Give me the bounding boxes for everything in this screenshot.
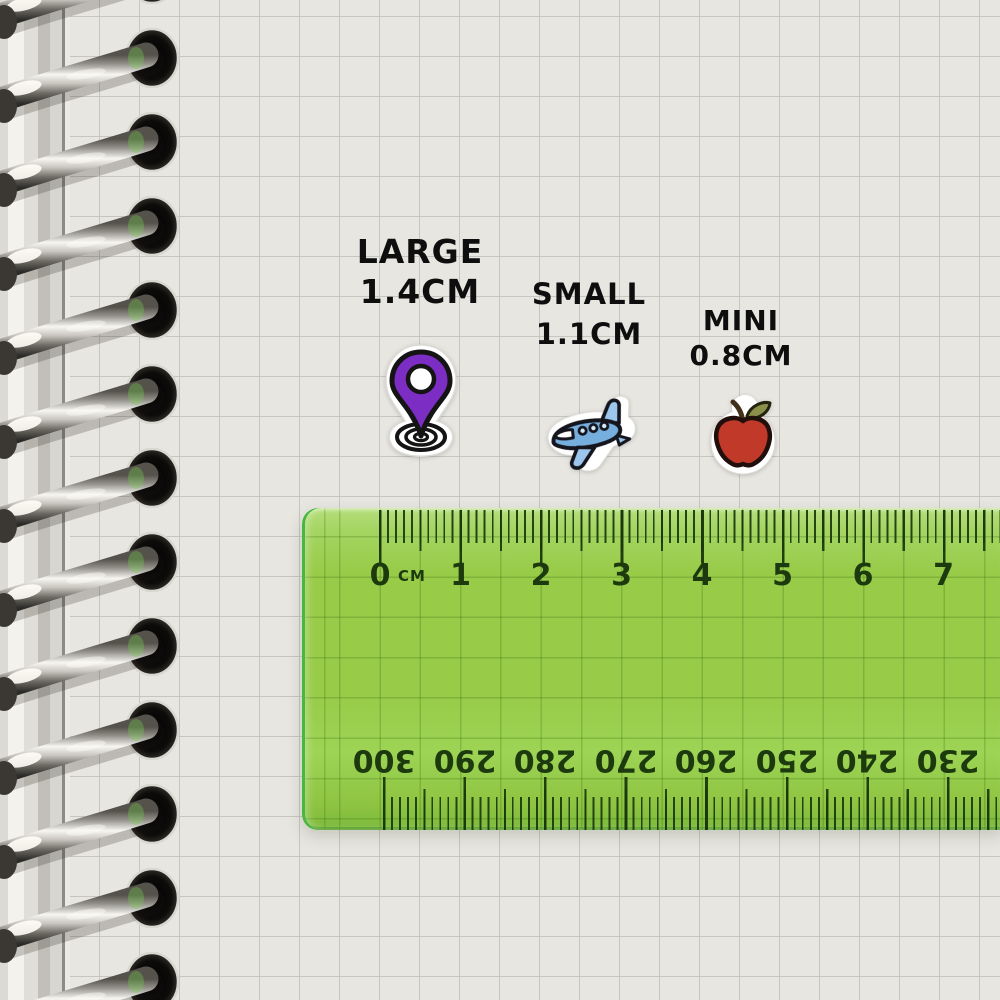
ruler-number-bottom: 290 xyxy=(433,743,496,778)
airplane-sticker-icon xyxy=(536,391,643,477)
spiral-ring xyxy=(0,0,178,26)
ruler-number-bottom: 240 xyxy=(836,743,899,778)
apple-sticker-icon xyxy=(707,392,779,476)
location-pin-sticker-icon xyxy=(380,342,462,464)
ruler-number-top: 3 xyxy=(611,558,632,593)
spiral-binding-icon xyxy=(0,0,210,1000)
ruler-number-top: 1 xyxy=(450,558,471,593)
ruler-number-bottom: 230 xyxy=(916,743,979,778)
label-mini: MINI 0.8CM xyxy=(689,303,792,373)
ruler-number-bottom: 250 xyxy=(755,743,818,778)
ruler-number-bottom: 300 xyxy=(353,743,416,778)
ruler-number-top: 6 xyxy=(853,558,874,593)
notebook-photo: LARGE 1.4CM SMALL 1.1CM MINI 0.8CM xyxy=(0,0,1000,1000)
label-large-title: LARGE xyxy=(357,232,484,272)
ruler-number-top: 0 xyxy=(370,558,391,593)
label-small-title: SMALL xyxy=(532,274,646,314)
label-small-size: 1.1CM xyxy=(532,314,646,354)
label-large: LARGE 1.4CM xyxy=(357,232,484,312)
label-mini-title: MINI xyxy=(689,303,792,338)
ruler-number-bottom: 280 xyxy=(514,743,577,778)
ruler-unit-label: CM xyxy=(398,567,426,585)
ruler-number-top: 5 xyxy=(772,558,793,593)
ruler-number-top: 2 xyxy=(531,558,552,593)
ruler-number-bottom: 260 xyxy=(675,743,738,778)
ruler-number-bottom: 270 xyxy=(594,743,657,778)
ruler-number-top: 4 xyxy=(692,558,713,593)
label-small: SMALL 1.1CM xyxy=(532,274,646,354)
ruler-bottom-cm-ticks xyxy=(383,777,1000,830)
label-mini-size: 0.8CM xyxy=(689,338,792,373)
ruler: 0 CM 1 2 3 4 5 6 7 300 290 280 270 260 2… xyxy=(302,508,1000,830)
ruler-number-top: 7 xyxy=(933,558,954,593)
label-large-size: 1.4CM xyxy=(357,272,484,312)
ruler-top-cm-ticks xyxy=(379,510,1000,563)
